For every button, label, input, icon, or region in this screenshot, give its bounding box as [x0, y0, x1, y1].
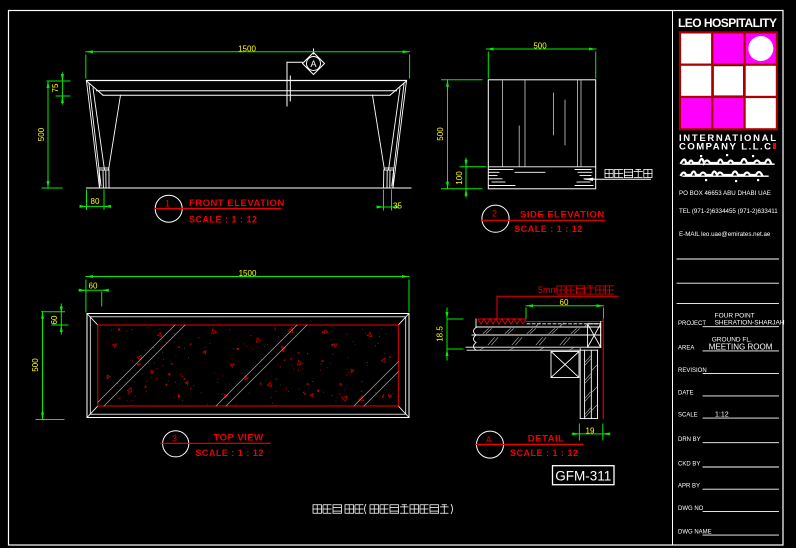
svg-text:CKD BY: CKD BY: [678, 462, 700, 468]
svg-text:100: 100: [455, 171, 464, 185]
svg-text:DWG NAME: DWG NAME: [678, 530, 712, 536]
svg-text:FRONT ELEVATION: FRONT ELEVATION: [189, 198, 285, 209]
svg-text:E-MAIL leo.uae@emirates.net.ae: E-MAIL leo.uae@emirates.net.ae: [679, 231, 771, 238]
svg-text:80: 80: [91, 197, 100, 206]
svg-text:SIDE ELEVATION: SIDE ELEVATION: [520, 210, 605, 221]
svg-text:2: 2: [492, 209, 497, 219]
svg-text:DWG NO: DWG NO: [678, 506, 704, 512]
svg-text:5mm: 5mm: [538, 285, 558, 295]
svg-text:1: 1: [165, 199, 170, 209]
svg-text:COMPANY L.L.C: COMPANY L.L.C: [679, 142, 771, 153]
svg-text:SCALE: SCALE: [678, 413, 698, 419]
svg-text:SCALE : 1 : 12: SCALE : 1 : 12: [195, 448, 264, 458]
svg-text:35: 35: [393, 202, 402, 211]
svg-text:3: 3: [172, 434, 177, 444]
svg-text:SCALE : 1 : 12: SCALE : 1 : 12: [514, 224, 583, 234]
svg-text:FOUR POINT: FOUR POINT: [715, 313, 755, 320]
svg-text:60: 60: [560, 298, 569, 307]
svg-text:DRN BY: DRN BY: [678, 437, 701, 443]
svg-text:500: 500: [533, 42, 547, 51]
svg-text:REVISION: REVISION: [678, 368, 707, 374]
svg-text:500: 500: [37, 127, 46, 141]
svg-text:APR BY: APR BY: [678, 484, 700, 490]
svg-text:DETAIL: DETAIL: [528, 434, 565, 445]
svg-text:1500: 1500: [239, 269, 257, 278]
svg-text:LEO HOSPITALITY: LEO HOSPITALITY: [678, 16, 777, 30]
svg-text:TEL (971-2)6334455 (971-2)6334: TEL (971-2)6334455 (971-2)633411: [679, 208, 778, 215]
svg-text:A: A: [486, 436, 492, 445]
svg-text:19: 19: [586, 426, 595, 435]
svg-text:MEETING ROOM: MEETING ROOM: [709, 342, 773, 351]
svg-text:A: A: [310, 59, 316, 69]
svg-text:60: 60: [89, 282, 98, 291]
svg-text:1500: 1500: [238, 44, 256, 53]
svg-text:75: 75: [51, 83, 60, 92]
svg-text:500: 500: [436, 127, 445, 141]
svg-text:SCALE : 1 : 12: SCALE : 1 : 12: [189, 215, 258, 225]
svg-text:60: 60: [50, 315, 59, 324]
svg-text:DATE: DATE: [678, 390, 694, 396]
svg-text:TOP VIEW: TOP VIEW: [214, 433, 264, 444]
svg-text:SCALE : 1 : 12: SCALE : 1 : 12: [510, 448, 579, 458]
svg-text:18.5: 18.5: [436, 326, 445, 342]
svg-text:AREA: AREA: [678, 345, 694, 351]
svg-text:1:12: 1:12: [715, 412, 729, 419]
svg-text:PO BOX 46653 ABU DHABI UAE: PO BOX 46653 ABU DHABI UAE: [679, 190, 771, 197]
svg-text:SHERATION-SHARJAH: SHERATION-SHARJAH: [715, 320, 785, 327]
svg-text:500: 500: [31, 358, 40, 372]
svg-text:GFM-311: GFM-311: [555, 469, 611, 484]
svg-text:PROJECT: PROJECT: [678, 321, 706, 327]
